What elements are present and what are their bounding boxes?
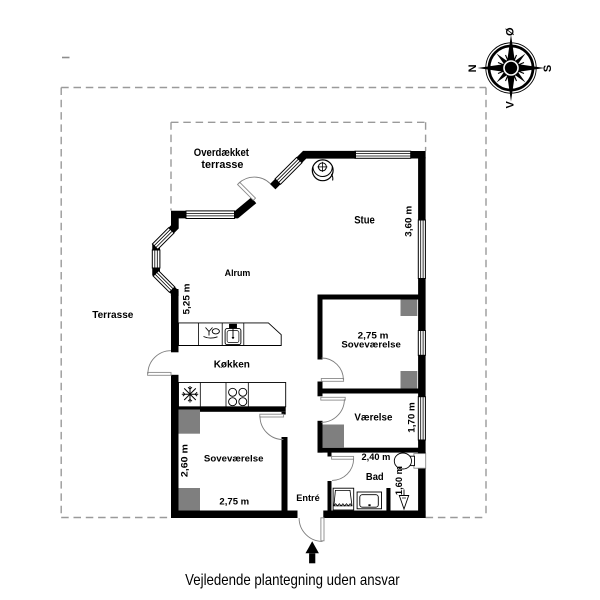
svg-text:Entré: Entré: [296, 493, 319, 504]
svg-text:Værelse: Værelse: [354, 413, 392, 424]
svg-text:2,40 m: 2,40 m: [362, 452, 391, 462]
svg-text:Terrasse: Terrasse: [92, 310, 133, 321]
svg-text:Overdækket: Overdækket: [194, 147, 249, 159]
svg-text:1,60 m: 1,60 m: [394, 466, 404, 495]
svg-text:Vejledende plantegning uden an: Vejledende plantegning uden ansvar: [185, 572, 400, 589]
svg-text:5,25 m: 5,25 m: [182, 284, 192, 315]
svg-text:Bad: Bad: [366, 472, 384, 483]
svg-text:2,60 m: 2,60 m: [179, 444, 190, 477]
svg-text:Soveværelse: Soveværelse: [204, 454, 264, 464]
svg-text:Køkken: Køkken: [214, 359, 250, 370]
svg-text:1,70 m: 1,70 m: [407, 402, 417, 433]
svg-text:V: V: [504, 100, 516, 108]
svg-text:3,60 m: 3,60 m: [404, 206, 414, 237]
svg-text:2,75 m: 2,75 m: [219, 497, 249, 507]
svg-text:Soveværelse: Soveværelse: [341, 339, 401, 349]
svg-text:Alrum: Alrum: [225, 268, 251, 279]
svg-text:terrasse: terrasse: [201, 159, 243, 171]
svg-text:N: N: [467, 64, 479, 72]
svg-text:Ø: Ø: [505, 27, 517, 36]
svg-text:S: S: [542, 65, 554, 72]
svg-text:Stue: Stue: [354, 215, 375, 227]
